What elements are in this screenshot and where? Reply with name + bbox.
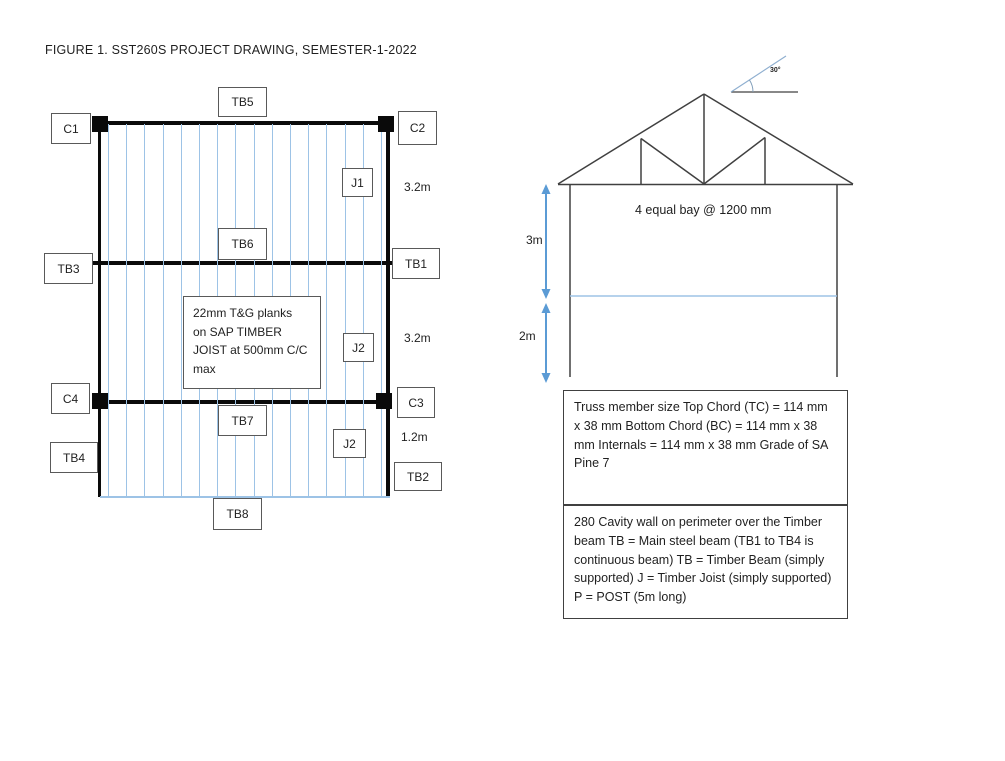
plan-planks-note: 22mm T&G planks on SAP TIMBER JOIST at 5… [183, 296, 321, 389]
dim-bay-mid: 3.2m [404, 331, 431, 345]
angle-slope-line [731, 56, 786, 92]
label-c1: C1 [51, 113, 91, 144]
joist-line [326, 124, 327, 496]
truss-top-chord-left [558, 94, 704, 184]
label-tb6: TB6 [218, 228, 267, 260]
column-c2-marker [378, 116, 394, 132]
joist-line [144, 124, 145, 496]
label-tb7: TB7 [218, 405, 267, 436]
column-c4-marker [92, 393, 108, 409]
label-tb5: TB5 [218, 87, 267, 117]
label-c3: C3 [397, 387, 435, 418]
figure-title: FIGURE 1. SST260S PROJECT DRAWING, SEMES… [45, 43, 417, 57]
label-c4: C4 [51, 383, 90, 414]
joist-line [163, 124, 164, 496]
truss-diagonal-left [641, 139, 704, 185]
label-j2-bottom: J2 [333, 429, 366, 458]
label-tb4: TB4 [50, 442, 98, 473]
legend-note-box: 280 Cavity wall on perimeter over the Ti… [563, 505, 848, 619]
dim-arrowhead [542, 289, 551, 299]
label-j2-mid: J2 [343, 333, 374, 362]
dim-bay-bottom: 1.2m [401, 430, 428, 444]
truss-member-note-box: Truss member size Top Chord (TC) = 114 m… [563, 390, 848, 505]
dim-2m-label: 2m [519, 329, 536, 343]
label-tb8: TB8 [213, 498, 262, 530]
label-tb1: TB1 [392, 248, 440, 279]
joist-line [126, 124, 127, 496]
roof-pitch-angle-label: 30° [770, 67, 781, 74]
label-tb3: TB3 [44, 253, 93, 284]
column-c3-marker [376, 393, 392, 409]
label-tb2: TB2 [394, 462, 442, 491]
joist-line [381, 124, 382, 496]
drawing-canvas: FIGURE 1. SST260S PROJECT DRAWING, SEMES… [0, 0, 1005, 761]
truss-diagonal-right [704, 138, 765, 185]
label-c2: C2 [398, 111, 437, 145]
truss-top-chord-right [704, 94, 853, 184]
label-j1: J1 [342, 168, 373, 197]
dim-arrowhead [542, 373, 551, 383]
elevation-bay-note: 4 equal bay @ 1200 mm [635, 203, 771, 217]
joist-line [181, 124, 182, 496]
dim-arrowhead [542, 184, 551, 194]
angle-arc [749, 80, 753, 92]
dim-3m-label: 3m [526, 233, 543, 247]
joist-line [108, 124, 109, 496]
dim-bay-top: 3.2m [404, 180, 431, 194]
column-c1-marker [92, 116, 108, 132]
dim-arrowhead [542, 303, 551, 313]
